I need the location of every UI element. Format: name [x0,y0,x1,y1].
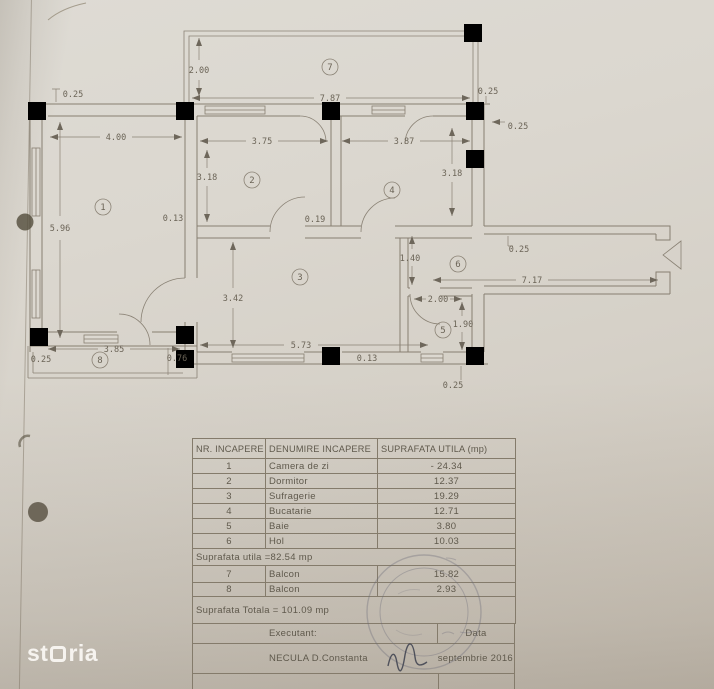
date-value: septembrie 2016 [438,653,514,664]
table-row: 5 Baie 3.80 [193,519,516,534]
door-arcs [119,116,440,345]
table-row: 6 Hol 10.03 [193,534,516,549]
dim-label: 0.13 [357,354,377,364]
signature-row: NECULA D.Constanta septembrie 2016 [192,644,515,674]
dim-label: 3.87 [394,137,414,147]
executant-row: Executant: Data [192,624,515,644]
dim-label: 0.25 [509,245,529,255]
table-row: 2 Dormitor 12.37 [193,474,516,489]
dim-label: 0.25 [31,355,51,365]
dim-label: 0.25 [63,90,83,100]
entrance-arrow-icon [663,241,681,269]
data-label: Data [438,624,514,643]
walls [28,31,681,378]
table-row: 8 Balcon 2.93 [193,583,516,597]
table-row: 3 Sufragerie 19.29 [193,489,516,504]
dim-label: 7.87 [320,94,340,104]
room-number-5: 5 [435,322,451,338]
floor-plan-drawing: 0.25 4.00 2.00 7.87 0.25 3.75 3.87 0.25 … [0,0,714,430]
dim-label: 0.76 [167,354,187,364]
dim-label: 1.90 [453,320,473,330]
room-number-7: 7 [322,59,338,75]
executant-label: Executant: [193,624,438,643]
dim-label: 3.18 [442,169,462,179]
storia-watermark: st ria [27,640,98,667]
room-number-1: 1 [95,199,111,215]
dim-label: 0.25 [508,122,528,132]
dim-label: 3.18 [197,173,217,183]
total-row: Suprafata Totala = 101.09 mp [193,597,516,624]
area-table: NR. INCAPERE DENUMIRE INCAPERE SUPRAFATA… [192,438,515,689]
col-header-denumire: DENUMIRE INCAPERE [266,439,378,459]
svg-text:5: 5 [440,326,445,336]
svg-text:7: 7 [327,63,332,73]
scanned-floorplan-document: 0.25 4.00 2.00 7.87 0.25 3.75 3.87 0.25 … [0,0,714,689]
dim-label: 3.85 [104,345,124,355]
dim-label: 5.73 [291,341,311,351]
table-row: 1 Camera de zi - 24.34 [193,459,516,474]
dim-label: 0.25 [478,87,498,97]
dim-label: 3.75 [252,137,272,147]
columns [28,24,484,368]
svg-text:1: 1 [100,203,105,213]
svg-text:3: 3 [297,273,302,283]
svg-text:8: 8 [97,356,102,366]
svg-text:4: 4 [389,186,394,196]
empty-row [192,674,515,689]
subtotal-row: Suprafata utila =82.54 mp [193,549,516,566]
dim-label: 7.17 [522,276,542,286]
room-number-3: 3 [292,269,308,285]
table-row: 4 Bucatarie 12.71 [193,504,516,519]
room-numbers: 1 2 3 4 5 6 7 8 [92,59,466,368]
dim-label: 5.96 [50,224,70,234]
svg-text:2: 2 [249,176,254,186]
dim-label: 4.00 [106,133,126,143]
room-number-4: 4 [384,182,400,198]
room-number-6: 6 [450,256,466,272]
dimension-lines [48,38,658,380]
watermark-text-left: st [27,640,48,667]
room-areas-table: NR. INCAPERE DENUMIRE INCAPERE SUPRAFATA… [192,438,516,624]
dim-label: 0.19 [305,215,325,225]
dim-label: 2.00 [428,295,448,305]
dim-label: 2.00 [189,66,209,76]
watermark-text-right: ria [68,640,98,667]
windows [32,106,443,362]
col-header-nr: NR. INCAPERE [193,439,266,459]
executant-name: NECULA D.Constanta [193,653,368,664]
dim-label: 1.40 [400,254,420,264]
table-row: 7 Balcon 15.82 [193,566,516,583]
col-header-suprafata: SUPRAFATA UTILA (mp) [378,439,516,459]
dim-label: 0.25 [443,381,463,391]
storia-o-icon [50,646,66,662]
room-number-8: 8 [92,352,108,368]
room-number-2: 2 [244,172,260,188]
dim-label: 0.13 [163,214,183,224]
svg-text:6: 6 [455,260,460,270]
dim-label: 3.42 [223,294,243,304]
